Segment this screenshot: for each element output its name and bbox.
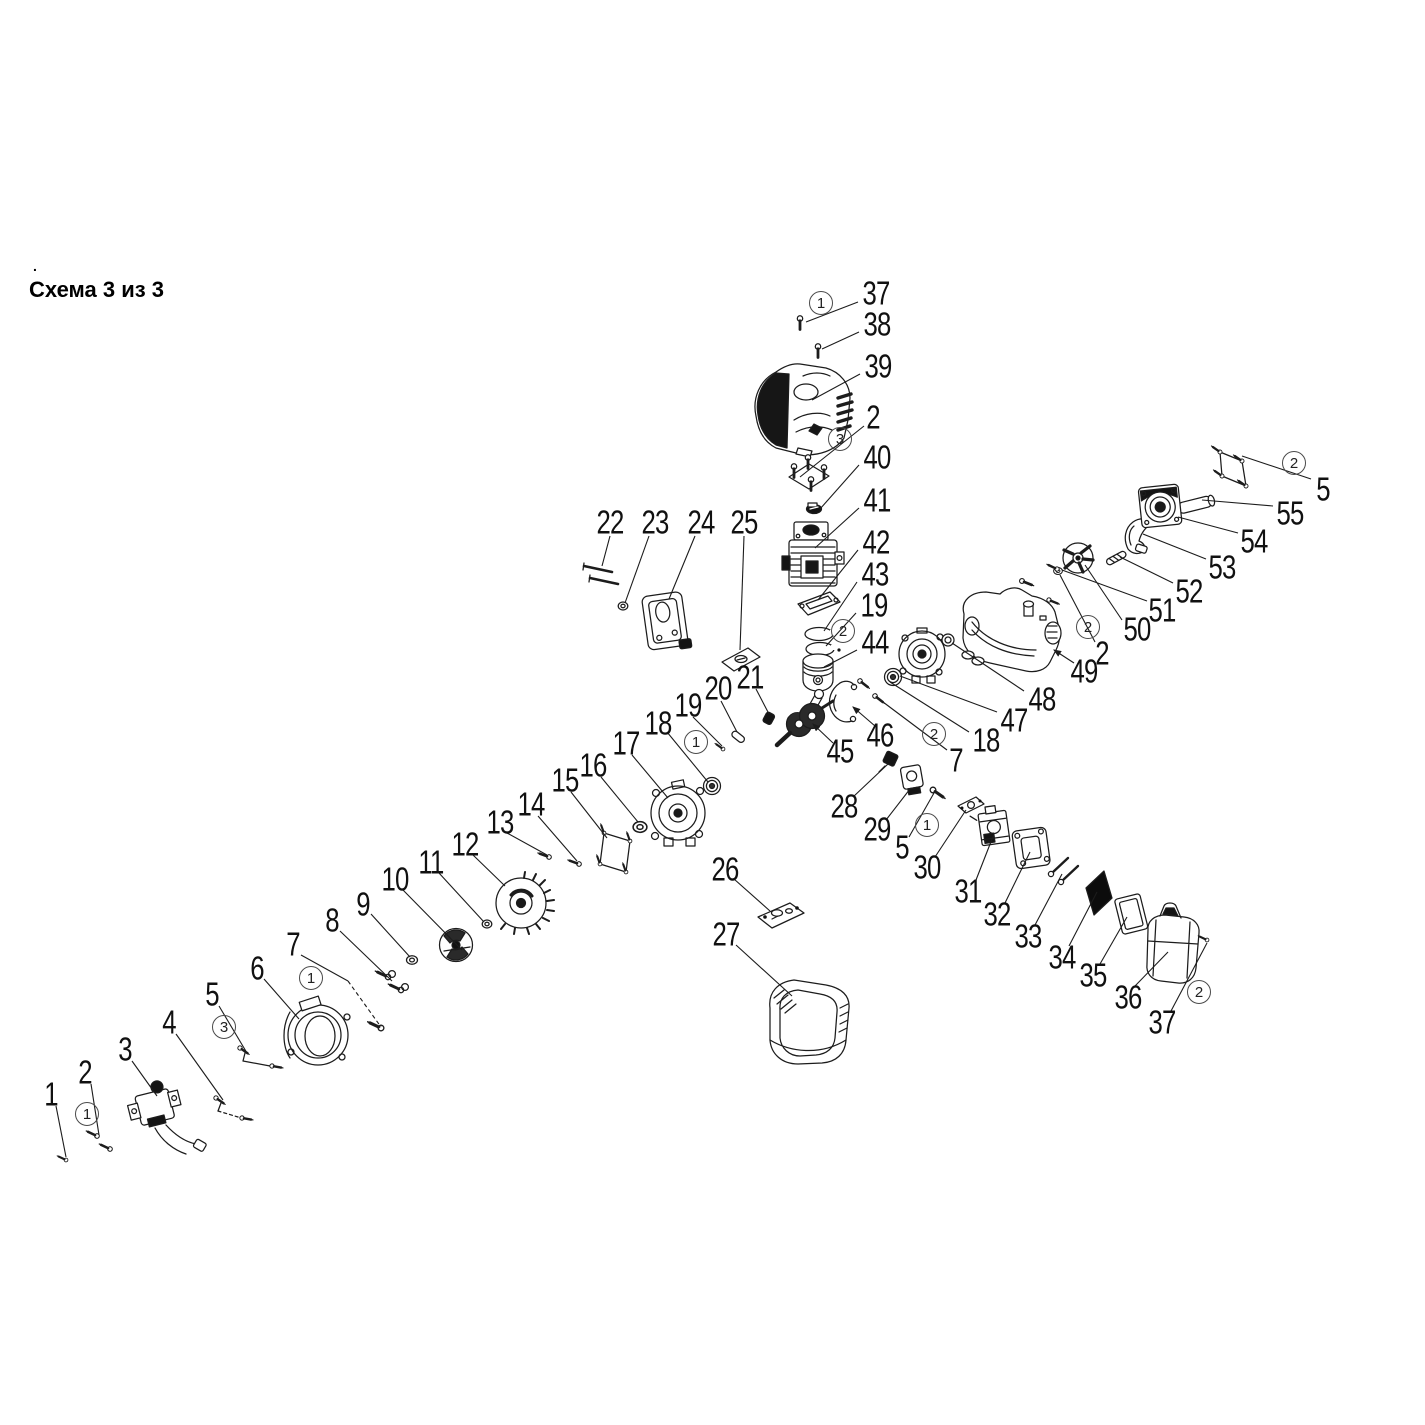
callout-label-36-61: 36: [1114, 981, 1141, 1014]
quantity-badge-1-2: 1: [299, 966, 323, 990]
callout-label-3-47: 3: [118, 1033, 132, 1066]
callout-label-14-36: 14: [517, 788, 544, 821]
part-36-airfilter-cover: [1147, 903, 1199, 983]
callout-label-55-23: 55: [1276, 497, 1303, 530]
callout-label-5-24: 5: [1316, 473, 1330, 506]
part-10-clutch-assembly: [440, 929, 473, 962]
part-2-cover-screws-plate: [789, 455, 829, 491]
part-30-gasket: [958, 797, 984, 813]
quantity-badge-1-0: 1: [809, 291, 833, 315]
leader-line: [403, 890, 462, 950]
part-3-ignition-coil: [123, 1076, 206, 1154]
leader-line: [1062, 570, 1147, 601]
leader-line: [853, 764, 888, 797]
leader-line: [56, 1106, 66, 1157]
callout-label-50-18: 50: [1123, 613, 1150, 646]
screw-14: [567, 858, 582, 867]
part-16-washer: [633, 822, 647, 833]
screw-2-right: [1019, 578, 1035, 588]
exploded-diagram-page: . Схема 3 из 3: [0, 0, 1425, 1425]
callout-label-46-11: 46: [866, 719, 893, 752]
callout-label-23-26: 23: [641, 506, 668, 539]
leader-line: [740, 536, 744, 650]
part-24-muffler: [641, 591, 692, 653]
part-7-bolt: [366, 1019, 384, 1032]
callout-label-29-53: 29: [863, 813, 890, 846]
leader-line: [1143, 534, 1206, 559]
callout-label-33-58: 33: [1014, 920, 1041, 953]
callout-label-5-45: 5: [205, 978, 219, 1011]
part-19-piston-ring: [806, 643, 841, 656]
part-20-piston-pin: [731, 730, 746, 744]
callout-label-19-31: 19: [674, 689, 701, 722]
callout-label-37-62: 37: [1148, 1006, 1175, 1039]
callout-label-2-17: 2: [1095, 637, 1109, 670]
callout-label-20-30: 20: [704, 672, 731, 705]
callout-label-12-38: 12: [451, 828, 478, 861]
callout-label-1-49: 1: [44, 1078, 58, 1111]
callout-label-49-16: 49: [1070, 655, 1097, 688]
part-50-ratchet-wheel: [1063, 543, 1093, 573]
callout-label-18-32: 18: [644, 707, 671, 740]
leader-line: [820, 465, 859, 509]
part-33-screws: [1048, 858, 1078, 885]
callout-label-52-20: 52: [1175, 575, 1202, 608]
callout-label-7-43: 7: [286, 928, 300, 961]
quantity-badge-2-5: 2: [831, 619, 855, 643]
part-4-wire-link: [213, 1095, 253, 1122]
leader-line: [176, 1034, 223, 1100]
quantity-badge-3-10: 3: [828, 427, 852, 451]
part-35-filter-element: [1114, 893, 1148, 934]
callout-label-54-22: 54: [1240, 525, 1267, 558]
callout-label-26-50: 26: [711, 853, 738, 886]
part-46-gasket-crankcase: [829, 681, 856, 722]
quantity-badge-1-4: 1: [75, 1102, 99, 1126]
part-23-nut: [618, 602, 628, 610]
callout-label-51-19: 51: [1148, 594, 1175, 627]
leader-line: [601, 777, 638, 822]
callout-label-21-29: 21: [736, 661, 763, 694]
bolt-5-right: [929, 786, 947, 801]
leader-line: [602, 536, 610, 566]
part-17-crankcase-flywheel-side: [651, 780, 705, 846]
part-27-bottom-guard: [770, 980, 849, 1064]
callout-label-2-48: 2: [78, 1056, 92, 1089]
quantity-badge-2-9: 2: [1187, 980, 1211, 1004]
leader-line: [340, 931, 392, 981]
part-52-spring: [1105, 550, 1127, 566]
part-47-crankcase-clutch-side: [899, 628, 945, 683]
callout-label-19-8: 19: [860, 589, 887, 622]
callout-label-47-12: 47: [1000, 704, 1027, 737]
part-34-filter-foam: [1086, 871, 1112, 915]
screw-38: [815, 344, 820, 358]
callout-label-45-10: 45: [826, 735, 853, 768]
screw-13: [537, 851, 552, 860]
part-15-stud-bracket: [595, 823, 633, 874]
part-42-cylinder-gasket: [798, 592, 840, 615]
parts-drawing: [0, 0, 1425, 1425]
callout-label-35-60: 35: [1079, 959, 1106, 992]
callout-label-27-51: 27: [712, 918, 739, 951]
callout-label-41-5: 41: [863, 484, 890, 517]
part-41-cylinder: [782, 522, 844, 586]
callout-label-31-56: 31: [954, 875, 981, 908]
part-9-washer: [407, 956, 418, 965]
part-40-intake-block: [807, 503, 822, 514]
leader-line: [1178, 517, 1238, 533]
callout-label-34-59: 34: [1048, 941, 1075, 974]
callout-label-53-21: 53: [1208, 551, 1235, 584]
callout-label-42-6: 42: [862, 526, 889, 559]
part-6-fan-cover: [284, 996, 350, 1065]
callout-label-15-35: 15: [551, 764, 578, 797]
leader-line: [736, 945, 792, 996]
quantity-badge-1-1: 1: [684, 730, 708, 754]
bearing-18-right: [885, 669, 902, 686]
leader-line: [1120, 557, 1173, 583]
callout-label-30-55: 30: [913, 851, 940, 884]
quantity-badge-2-6: 2: [922, 722, 946, 746]
quantity-badge-2-8: 2: [1282, 451, 1306, 475]
callout-label-39-2: 39: [864, 350, 891, 383]
leader-line: [439, 873, 484, 922]
leader-line: [132, 1061, 157, 1096]
callout-label-11-39: 11: [418, 846, 443, 879]
leader-line: [669, 536, 695, 599]
callout-label-9-41: 9: [356, 888, 370, 921]
leader-line: [571, 792, 607, 838]
quantity-badge-3-11: 3: [212, 1015, 236, 1039]
callout-label-6-44: 6: [250, 952, 264, 985]
leader-line: [348, 981, 381, 1027]
leader-line: [734, 879, 770, 911]
part-8-screws: [374, 969, 408, 994]
callout-label-7-15: 7: [949, 744, 963, 777]
leader-line: [900, 676, 997, 712]
callout-label-4-46: 4: [162, 1006, 176, 1039]
part-32-airfilter-base: [1012, 827, 1051, 869]
callout-label-22-25: 22: [596, 506, 623, 539]
callout-label-48-13: 48: [1028, 683, 1055, 716]
callout-label-38-1: 38: [863, 308, 890, 341]
part-28-valve: [879, 751, 898, 772]
callout-label-18-14: 18: [972, 724, 999, 757]
seal-48: [942, 634, 954, 646]
part-45-crankshaft: [777, 690, 833, 746]
leader-line: [822, 332, 859, 349]
leader-line: [625, 536, 649, 603]
callout-label-44-9: 44: [861, 626, 888, 659]
part-44-piston: [803, 654, 833, 691]
part-29-insulator: [900, 764, 925, 795]
quantity-badge-1-3: 1: [915, 813, 939, 837]
callout-label-16-34: 16: [579, 749, 606, 782]
leader-lines: [56, 302, 1311, 1157]
callout-label-28-52: 28: [830, 790, 857, 823]
part-31-carburetor: [969, 804, 1010, 847]
leader-line: [371, 914, 410, 957]
callout-label-10-40: 10: [381, 863, 408, 896]
leader-line: [1085, 565, 1122, 620]
part-1-screw: [56, 1154, 68, 1162]
part-5-bracket-top-right: [1210, 444, 1249, 489]
callout-label-2-3: 2: [866, 401, 880, 434]
callout-label-13-37: 13: [486, 806, 513, 839]
callout-label-32-57: 32: [983, 898, 1010, 931]
part-22-studs: [583, 563, 618, 584]
leader-line: [264, 979, 299, 1019]
screw-37-top: [797, 316, 802, 330]
callout-label-17-33: 17: [612, 727, 639, 760]
part-12-flywheel: [496, 872, 554, 934]
part-2-screws: [85, 1129, 113, 1152]
callout-label-8-42: 8: [325, 904, 339, 937]
callout-label-40-4: 40: [863, 441, 890, 474]
callout-label-24-27: 24: [687, 506, 714, 539]
screw-51: [1046, 562, 1060, 572]
callout-label-5-54: 5: [895, 831, 909, 864]
part-54-55-clutch-drum-shaft: [1138, 484, 1216, 528]
quantity-badge-2-7: 2: [1076, 615, 1100, 639]
callout-label-25-28: 25: [730, 506, 757, 539]
